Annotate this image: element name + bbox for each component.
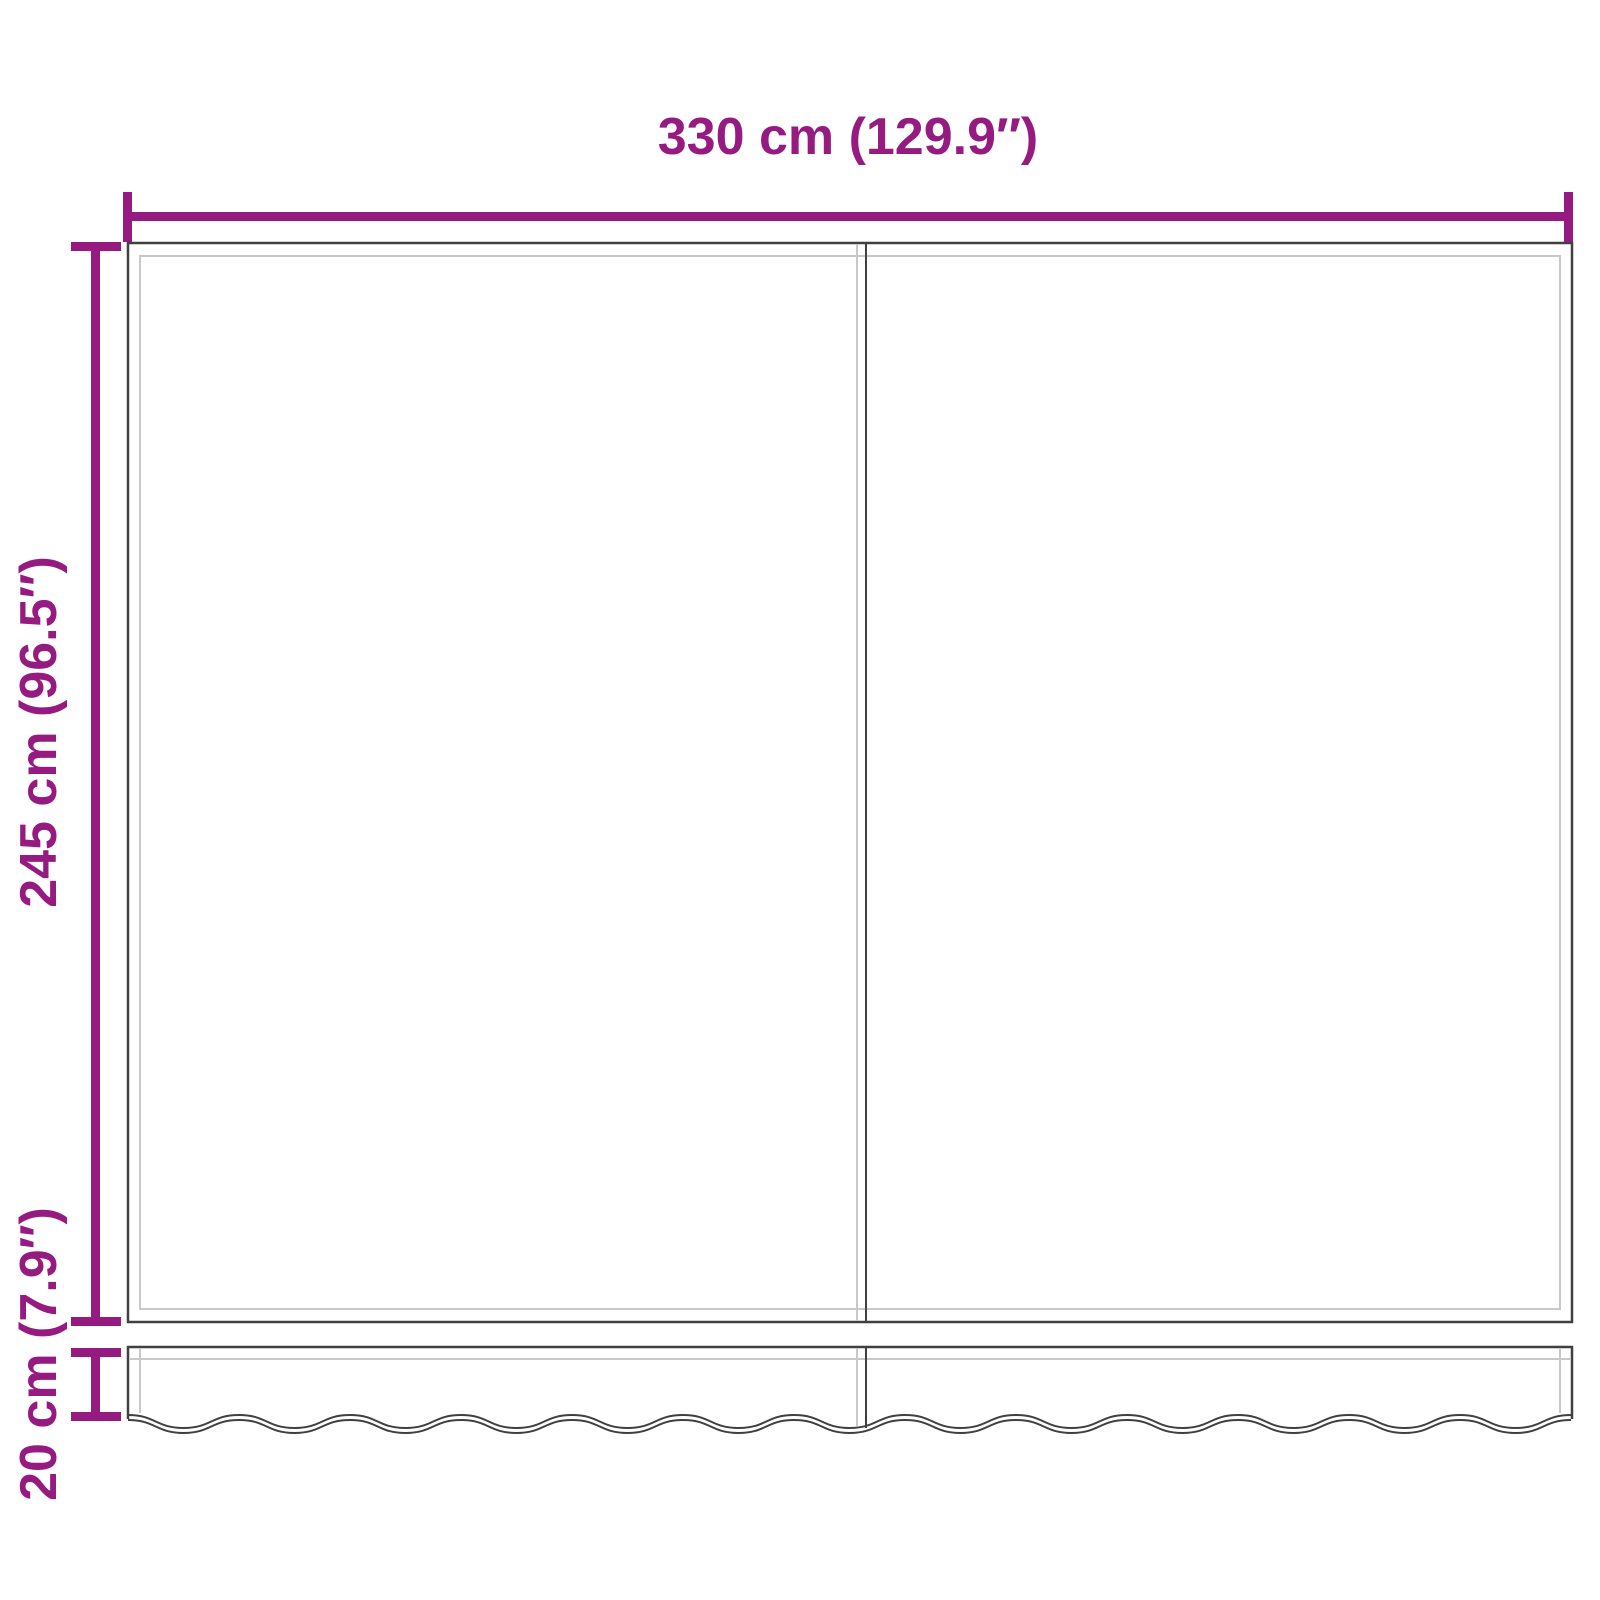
valance-wave-upper-edge bbox=[128, 1415, 1571, 1428]
awning-fabric-dimension-diagram: 330 cm (129.9″) 245 cm (96.5″) 20 cm (7.… bbox=[0, 0, 1600, 1600]
valance-dimension-top-tick bbox=[71, 1348, 121, 1357]
valance-dimension-line bbox=[71, 1348, 121, 1421]
width-dimension-label: 330 cm (129.9″) bbox=[658, 111, 1038, 163]
height-dimension-top-tick bbox=[71, 242, 121, 251]
width-dimension-line bbox=[123, 192, 1573, 242]
fabric-panel bbox=[128, 243, 1572, 1322]
height-dimension-bottom-tick bbox=[71, 1317, 121, 1326]
fabric-panel-outline bbox=[128, 243, 1572, 1322]
height-dimension-bar bbox=[91, 242, 100, 1326]
width-dimension-left-tick bbox=[123, 192, 132, 242]
width-dimension-bar bbox=[123, 212, 1573, 221]
diagram-canvas bbox=[0, 0, 1600, 1600]
width-dimension-right-tick bbox=[1564, 192, 1573, 242]
valance-dimension-bottom-tick bbox=[71, 1412, 121, 1421]
valance-dimension-bar bbox=[91, 1348, 100, 1421]
valance bbox=[128, 1347, 1572, 1433]
valance-outline bbox=[128, 1347, 1572, 1419]
height-dimension-line bbox=[71, 242, 121, 1326]
valance-wave-lower-edge bbox=[128, 1420, 1571, 1433]
fabric-panel-hem-line bbox=[140, 256, 1560, 1309]
height-dimension-label: 245 cm (96.5″) bbox=[13, 556, 65, 908]
valance-dimension-label: 20 cm (7.9″) bbox=[13, 1207, 65, 1501]
